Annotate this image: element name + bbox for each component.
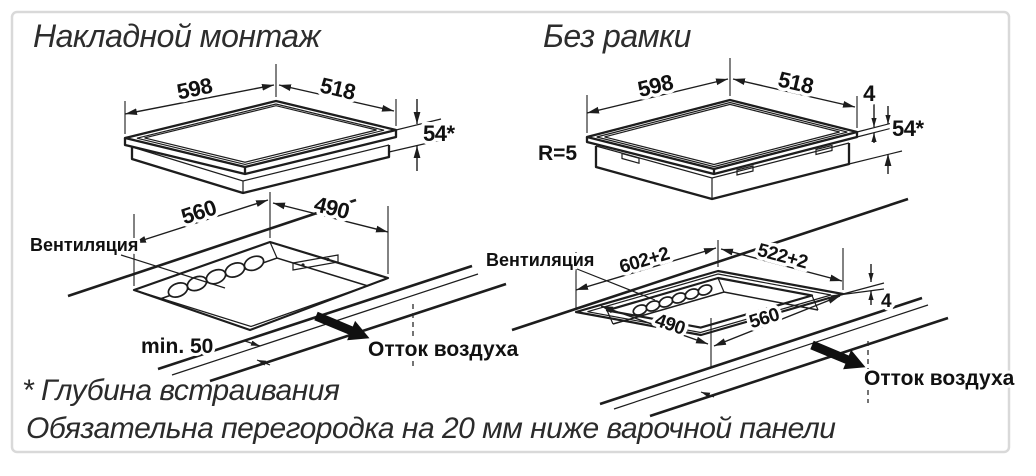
diagram-canvas: Накладной монтаж Без рамки 598 518 54* <box>0 0 1036 476</box>
left-cutout-width-dim: 560 <box>178 194 219 229</box>
right-hob-width-dim: 598 <box>635 69 675 102</box>
left-hob-depth-dim: 518 <box>318 73 358 105</box>
right-cutout-inner-depth-dim: 490 <box>652 310 687 340</box>
right-hob-glass-dim: 4 <box>863 81 876 106</box>
left-min-front-label: min. 50 <box>141 335 213 358</box>
installation-diagram-page: Накладной монтаж Без рамки 598 518 54* <box>0 0 1036 476</box>
left-cutout-depth-dim: 490 <box>312 191 352 224</box>
left-outflow-label: Отток воздуха <box>368 338 519 361</box>
right-cutout-drawing: 602+2 522+2 490 560 4 Вентиляция Отток в… <box>486 199 1015 416</box>
right-cutout-outer-width-dim: 602+2 <box>617 243 672 278</box>
right-ventilation-label: Вентиляция <box>486 250 594 270</box>
right-cutout-step-dim: 4 <box>881 291 892 312</box>
right-hob-drawing: R=5 598 518 4 54* <box>538 58 924 199</box>
left-title: Накладной монтаж <box>33 18 323 54</box>
right-outflow-label: Отток воздуха <box>864 367 1015 390</box>
left-cutout-drawing: 560 490 Вентиляция min. 50 Отток воздуха <box>30 191 519 381</box>
left-airflow-arrow <box>314 312 369 341</box>
footnote-depth: * Глубина встраивания <box>22 374 340 407</box>
right-hob-depth-dim: 518 <box>776 67 816 99</box>
left-ventilation-label: Вентиляция <box>30 235 138 255</box>
left-hob-height-dim: 54* <box>423 121 455 146</box>
right-hob-radius-label: R=5 <box>538 142 577 165</box>
left-bracket <box>293 255 338 270</box>
left-hob-drawing: 598 518 54* <box>125 64 455 193</box>
left-hob-width-dim: 598 <box>175 73 215 105</box>
right-cutout-inner-width-dim: 560 <box>747 304 782 333</box>
right-airflow-arrow <box>810 341 865 370</box>
right-title: Без рамки <box>543 18 692 54</box>
footnote-partition: Обязательна перегородка на 20 мм ниже ва… <box>26 412 836 445</box>
right-cutout-outer-depth-dim: 522+2 <box>755 240 810 273</box>
right-hob-height-dim: 54* <box>892 116 924 141</box>
